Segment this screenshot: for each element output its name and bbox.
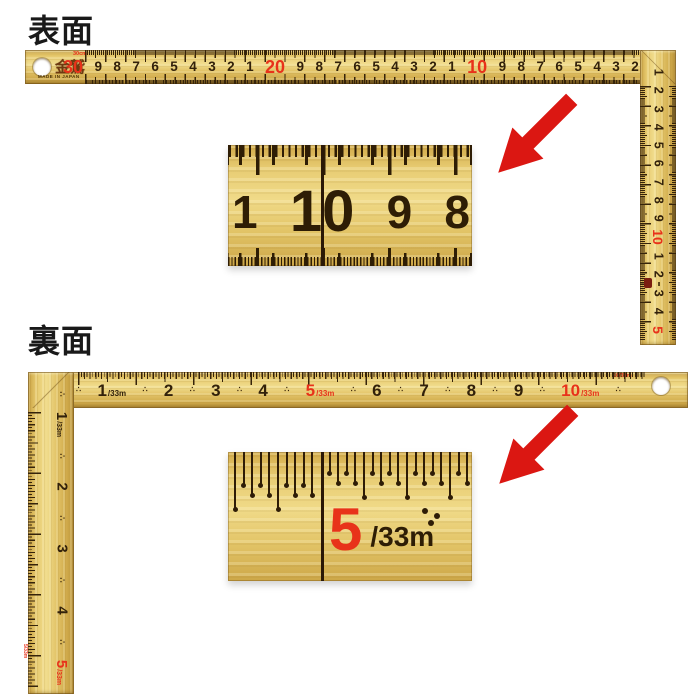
dotted-tick — [466, 452, 468, 482]
scale-number: 3 — [652, 105, 665, 112]
tick-strip — [228, 253, 472, 266]
dotted-tick — [423, 452, 425, 482]
maker-mark-icon — [644, 278, 652, 288]
scale-number: 1/33m — [55, 412, 70, 437]
front-ruler-horizontal-arm: 金鷲 MADE IN JAPAN 30cm 309876543212098765… — [25, 50, 676, 84]
half-mark: ∴ — [237, 386, 242, 394]
half-mark-dots-icon — [422, 508, 444, 530]
scale-number: 1/33m — [97, 382, 126, 399]
tick-strip — [28, 412, 38, 688]
back-label: 裏面 — [28, 316, 94, 362]
scale-number: 7 — [132, 60, 140, 74]
tick-strip — [28, 412, 32, 688]
scale-number: 2 — [429, 60, 437, 74]
scale-number: 6 — [353, 60, 361, 74]
scale-number: 3 — [612, 60, 620, 74]
half-mark: ∴ — [76, 386, 81, 394]
scale-number: 4 — [189, 60, 197, 74]
scale-number: 3 — [410, 60, 418, 74]
dotted-tick — [286, 452, 288, 484]
scale-note-5-33m: 5/33m — [22, 644, 28, 658]
hanging-hole — [652, 377, 670, 395]
dotted-tick — [397, 452, 399, 482]
scale-number: 3 — [208, 60, 216, 74]
half-mark: ∴ — [616, 386, 621, 394]
tick-strip — [228, 257, 472, 266]
front-vertical-scale: 1234567891012345 — [640, 66, 676, 337]
scale-number: 5 — [372, 60, 380, 74]
front-label: 表面 — [28, 6, 94, 52]
scale-number: 10 — [651, 229, 665, 245]
half-mark: ∴ — [284, 386, 289, 394]
scale-number: 8 — [113, 60, 121, 74]
scale-number: 5/33m — [306, 382, 335, 399]
red-arrow-icon — [483, 84, 588, 189]
front-inset-scale: 11098 — [232, 179, 470, 245]
front-zoom-inset: 11098 — [228, 145, 472, 266]
scale-number: 9 — [514, 382, 523, 399]
tick-strip — [228, 145, 472, 165]
scale-number: 8 — [652, 197, 665, 204]
scale-number: 1 — [448, 60, 456, 74]
scale-number: 1 — [246, 60, 254, 74]
scale-number: 3 — [55, 545, 70, 553]
scale-number: 3 — [652, 289, 665, 296]
half-mark: ∴ — [58, 515, 66, 520]
dotted-tick — [234, 452, 236, 508]
red-arrow-icon — [484, 395, 589, 500]
half-mark: ∴ — [398, 386, 403, 394]
half-mark: ∴ — [190, 386, 195, 394]
scale-number: 10 — [467, 58, 487, 76]
scale-number: 2 — [652, 87, 665, 94]
scale-number: 5 — [574, 60, 582, 74]
dotted-tick — [363, 452, 365, 496]
sashigane-product-image: 表面 金鷲 MADE IN JAPAN 30cm 309876543212098… — [0, 0, 700, 700]
dotted-tick — [415, 452, 417, 472]
dotted-tick — [294, 452, 296, 494]
scale-number: 4 — [652, 124, 665, 131]
scale-number: 9 — [499, 60, 507, 74]
scale-number: 2 — [164, 382, 173, 399]
dotted-tick — [268, 452, 270, 494]
scale-number: 10 — [290, 183, 355, 241]
scale-number: 4 — [391, 60, 399, 74]
scale-number: 20 — [265, 58, 285, 76]
tick-strip — [228, 145, 472, 157]
tick-strip — [228, 248, 472, 266]
scale-number: 6 — [151, 60, 159, 74]
dotted-tick — [449, 452, 451, 496]
dotted-tick — [329, 452, 331, 472]
scale-number: 4 — [593, 60, 601, 74]
dotted-tick — [277, 452, 279, 508]
scale-number: 8 — [518, 60, 526, 74]
dotted-tick — [380, 452, 382, 482]
scale-number: 8 — [467, 382, 476, 399]
half-mark: ∴ — [58, 453, 66, 458]
front-ruler-vertical-arm: 1234567891012345 — [640, 50, 676, 345]
half-mark: ∴ — [540, 386, 545, 394]
scale-number: 2 — [652, 271, 665, 278]
half-mark: ∴ — [492, 386, 497, 394]
back-vertical-scale: ∴1/33m∴2∴3∴4∴5/33m — [53, 390, 71, 680]
scale-number: 7 — [536, 60, 544, 74]
scale-number: 9 — [94, 60, 102, 74]
dotted-tick — [260, 452, 262, 484]
half-mark: ∴ — [142, 386, 147, 394]
scale-number: 9 — [652, 215, 665, 222]
dotted-tick — [406, 452, 408, 496]
scale-number: 7 — [419, 382, 428, 399]
back-ruler-vertical-arm: ∴1/33m∴2∴3∴4∴5/33m 5/33m — [28, 372, 74, 694]
scale-number: 6 — [652, 160, 665, 167]
half-mark: ∴ — [351, 386, 356, 394]
dotted-tick — [303, 452, 305, 484]
scale-number: 4 — [652, 308, 665, 315]
scale-number: 30 — [63, 58, 83, 76]
scale-number: 2 — [227, 60, 235, 74]
scale-number: 1 — [652, 253, 665, 260]
half-mark: ∴ — [445, 386, 450, 394]
front-horizontal-scale: 309876543212098765432110987654321 — [63, 51, 658, 83]
scale-number: 6 — [555, 60, 563, 74]
scale-number: 1 — [232, 189, 258, 235]
dotted-tick — [372, 452, 374, 472]
scale-number: 5 — [652, 142, 665, 149]
scale-number: 5 — [651, 326, 665, 334]
dotted-tick — [311, 452, 313, 494]
back-inset-number: 5 /33m — [329, 504, 434, 555]
scale-number: 4 — [258, 382, 267, 399]
scale-number: 10/33m — [561, 382, 599, 399]
main-graduation-line — [321, 452, 324, 581]
scale-number: 9 — [297, 60, 305, 74]
scale-number: 8 — [315, 60, 323, 74]
tick-strip — [228, 145, 472, 175]
half-mark: ∴ — [58, 577, 66, 582]
back-ruler-horizontal-arm: 16/33m ∴1/33m∴2∴3∴4∴5/33m∴6∴7∴8∴9∴10/33m… — [28, 372, 688, 408]
scale-number: 3 — [211, 382, 220, 399]
scale-number: 7 — [652, 178, 665, 185]
dotted-tick — [346, 452, 348, 472]
scale-number: 5/33m — [55, 660, 70, 685]
half-mark: ∴ — [58, 639, 66, 644]
dotted-tick — [458, 452, 460, 472]
dotted-tick — [337, 452, 339, 482]
dotted-tick — [251, 452, 253, 494]
scale-number: 8 — [444, 189, 470, 235]
inset-number-5: 5 — [329, 504, 362, 555]
back-zoom-inset: 5 /33m — [228, 452, 472, 581]
tick-strip — [28, 412, 35, 688]
scale-number: 7 — [334, 60, 342, 74]
scale-number: 9 — [387, 189, 413, 235]
tick-strip — [28, 412, 41, 688]
dotted-tick — [389, 452, 391, 472]
scale-number: 4 — [55, 606, 70, 614]
scale-number: 2 — [631, 60, 639, 74]
dotted-tick — [354, 452, 356, 482]
dotted-tick — [440, 452, 442, 482]
scale-number: 2 — [55, 483, 70, 491]
half-mark: ∴ — [58, 391, 66, 396]
dotted-tick — [243, 452, 245, 484]
back-horizontal-scale: ∴1/33m∴2∴3∴4∴5/33m∴6∴7∴8∴9∴10/33m∴ — [76, 374, 621, 406]
dotted-tick — [432, 452, 434, 472]
scale-number: 5 — [170, 60, 178, 74]
scale-number: 1 — [652, 69, 665, 76]
scale-number: 6 — [372, 382, 381, 399]
